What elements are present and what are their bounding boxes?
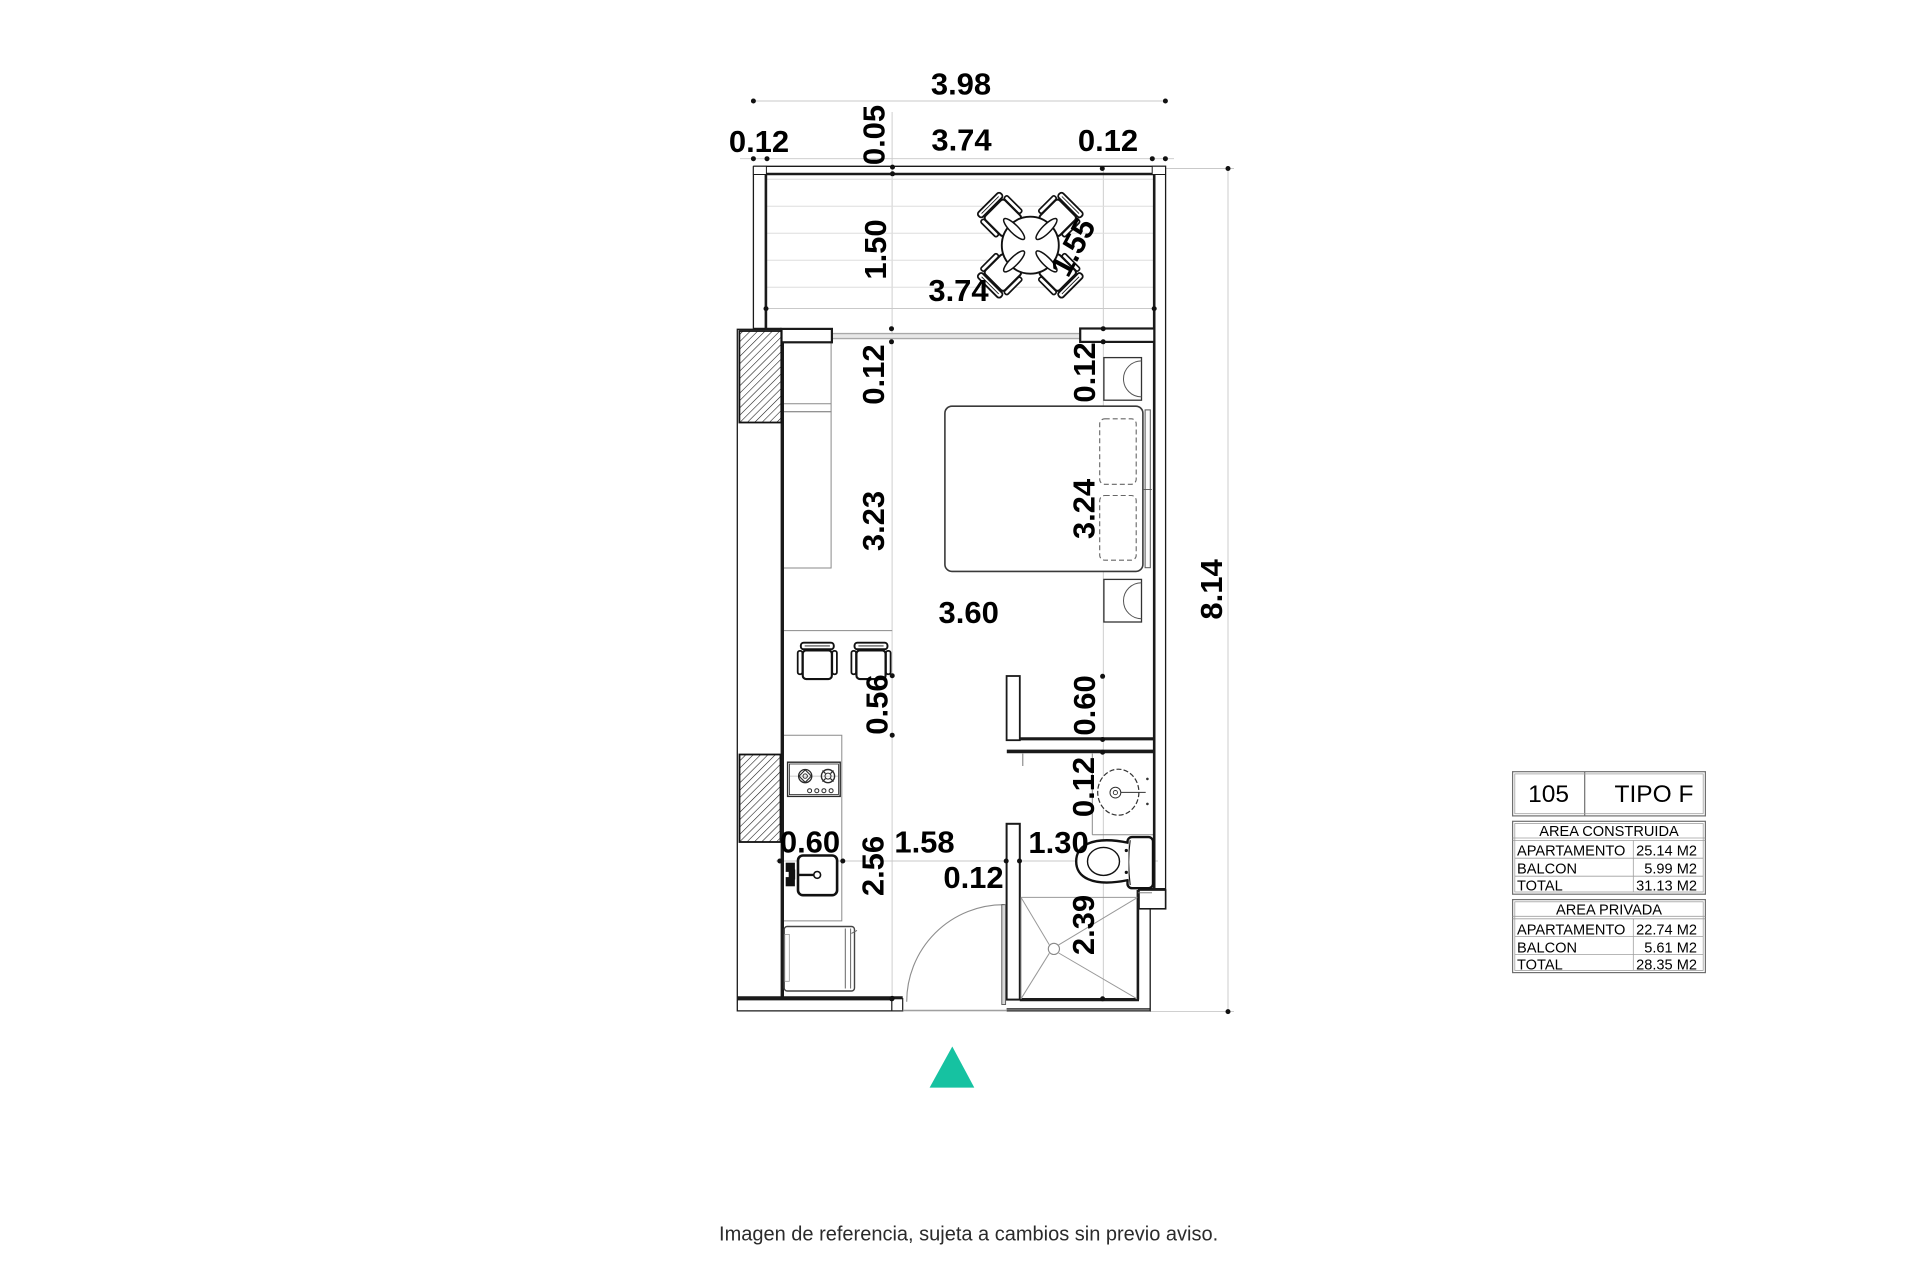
svg-text:1.30: 1.30 (1028, 825, 1088, 860)
svg-text:Imagen de referencia, sujeta a: Imagen de referencia, sujeta a cambios s… (719, 1223, 1218, 1245)
svg-text:0.12: 0.12 (1066, 757, 1101, 817)
svg-text:1.50: 1.50 (858, 219, 893, 279)
svg-text:28.35 M2: 28.35 M2 (1636, 958, 1697, 974)
svg-text:3.74: 3.74 (928, 273, 989, 308)
svg-text:25.14 M2: 25.14 M2 (1636, 844, 1697, 860)
svg-text:TOTAL: TOTAL (1517, 879, 1563, 895)
svg-text:0.12: 0.12 (1078, 123, 1138, 158)
svg-text:105: 105 (1528, 781, 1569, 808)
svg-text:TIPO F: TIPO F (1615, 781, 1694, 808)
svg-text:BALCON: BALCON (1517, 862, 1577, 878)
svg-text:1.58: 1.58 (894, 825, 954, 860)
svg-text:5.61 M2: 5.61 M2 (1644, 941, 1697, 957)
svg-text:5.99 M2: 5.99 M2 (1644, 862, 1697, 878)
svg-text:3.74: 3.74 (931, 123, 992, 158)
svg-text:8.14: 8.14 (1194, 558, 1229, 619)
svg-text:0.12: 0.12 (856, 344, 891, 404)
svg-text:TOTAL: TOTAL (1517, 958, 1563, 974)
svg-text:3.60: 3.60 (939, 595, 999, 630)
svg-text:2.39: 2.39 (1066, 895, 1101, 955)
svg-text:0.12: 0.12 (729, 124, 789, 159)
svg-text:22.74 M2: 22.74 M2 (1636, 923, 1697, 939)
svg-text:APARTAMENTO: APARTAMENTO (1517, 923, 1625, 939)
svg-text:AREA CONSTRUIDA: AREA CONSTRUIDA (1539, 824, 1679, 840)
svg-text:APARTAMENTO: APARTAMENTO (1517, 844, 1625, 860)
svg-text:31.13 M2: 31.13 M2 (1636, 879, 1697, 895)
svg-text:0.60: 0.60 (1067, 675, 1102, 735)
svg-text:0.60: 0.60 (780, 825, 840, 860)
svg-text:0.56: 0.56 (860, 674, 895, 734)
svg-text:3.24: 3.24 (1067, 478, 1102, 539)
svg-text:BALCON: BALCON (1517, 941, 1577, 957)
svg-text:0.12: 0.12 (943, 860, 1003, 895)
svg-text:3.23: 3.23 (856, 491, 891, 551)
svg-text:0.12: 0.12 (1067, 342, 1102, 402)
svg-text:2.56: 2.56 (856, 836, 891, 896)
svg-text:AREA PRIVADA: AREA PRIVADA (1556, 903, 1662, 919)
svg-text:0.05: 0.05 (857, 105, 892, 165)
svg-text:3.98: 3.98 (931, 67, 991, 102)
